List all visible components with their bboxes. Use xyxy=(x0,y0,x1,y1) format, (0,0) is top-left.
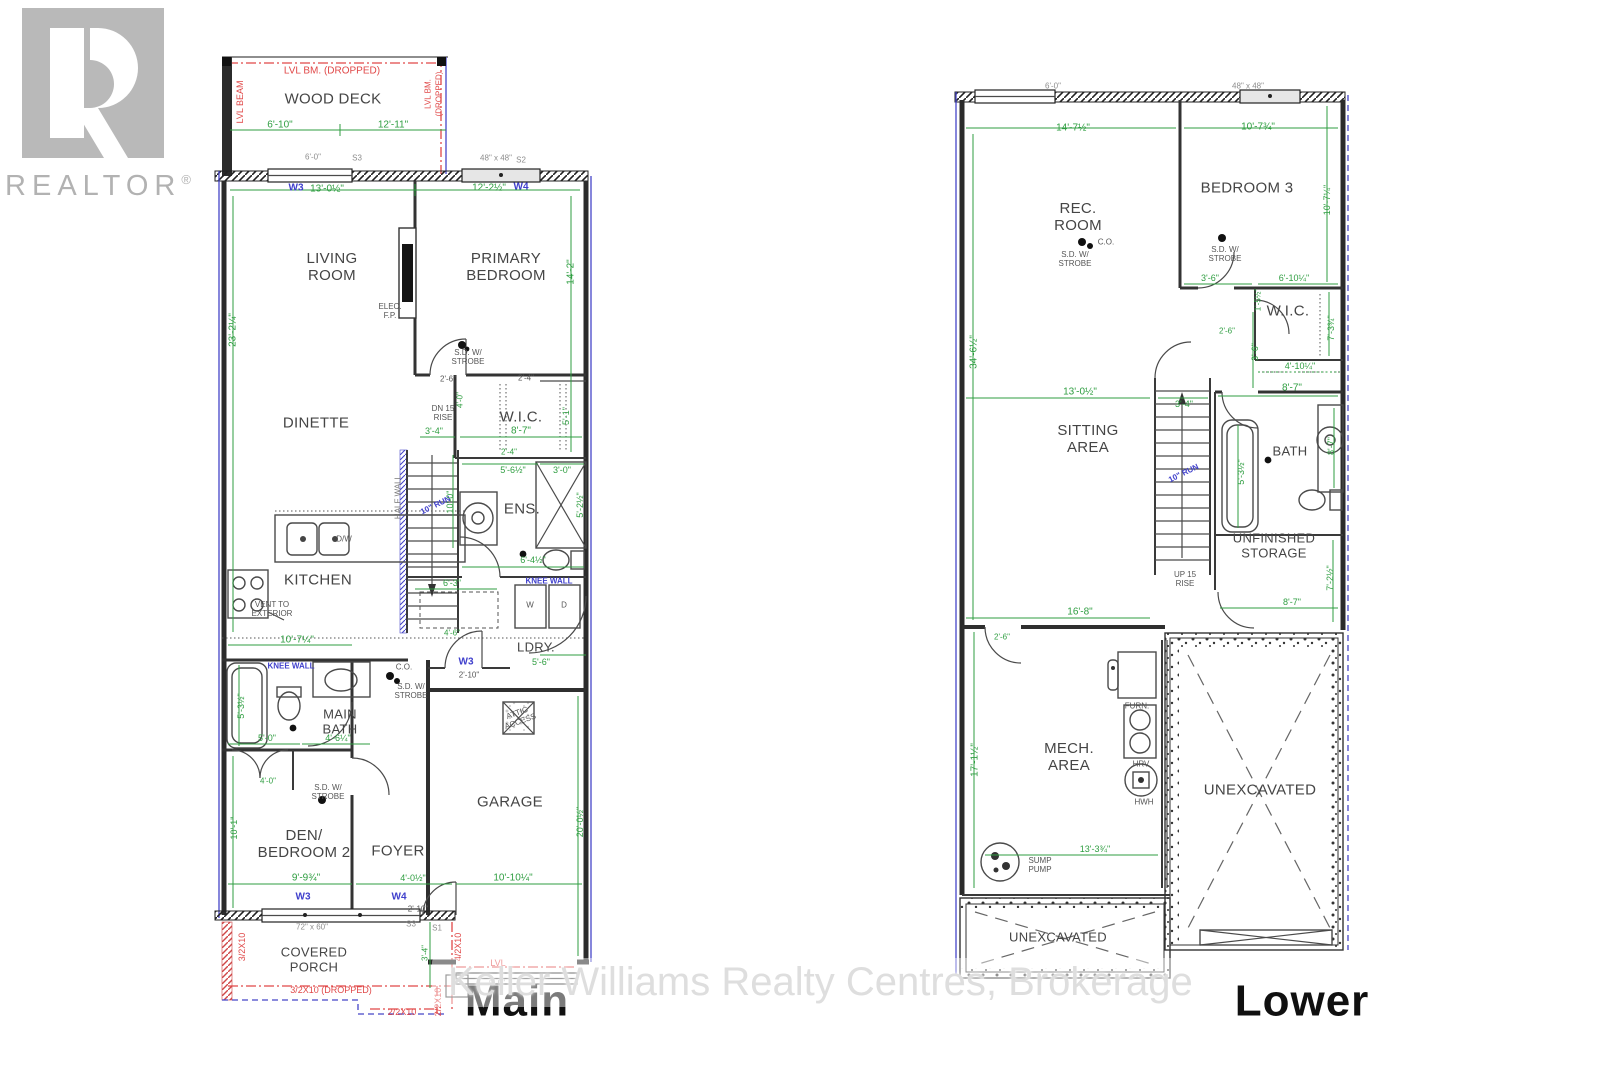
plan-linework xyxy=(0,0,1600,1067)
realtor-logo-icon xyxy=(22,8,164,158)
lower-floor-linework xyxy=(955,90,1348,978)
floor-plan-sheet: REALTOR® R WOOD DECK LVL BM. (DROPPED) L… xyxy=(0,0,1600,1067)
main-floor-linework xyxy=(215,57,591,1014)
